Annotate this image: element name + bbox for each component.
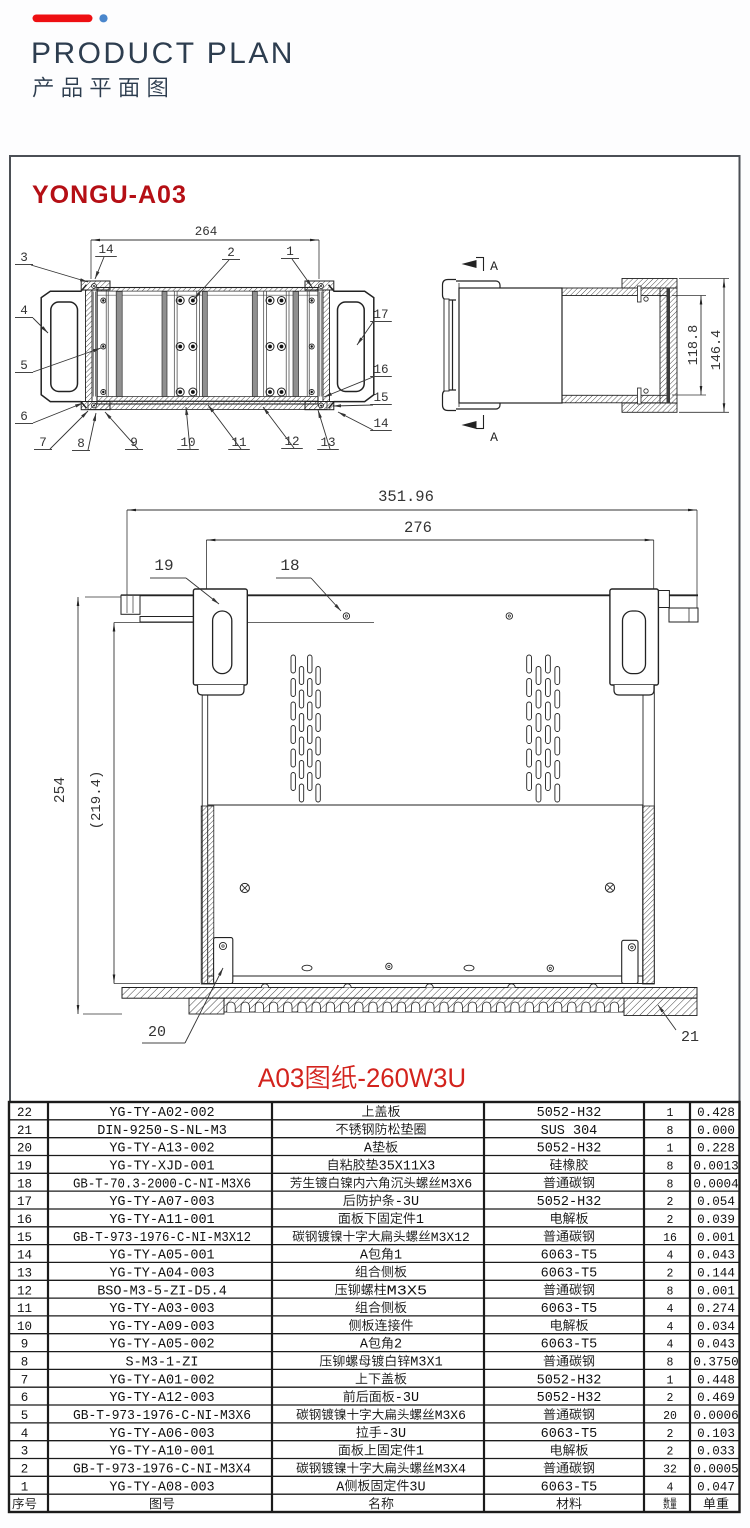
svg-text:8: 8 (667, 1125, 674, 1138)
svg-text:PRODUCT PLAN: PRODUCT PLAN (31, 37, 295, 70)
svg-text:0.033: 0.033 (697, 1445, 735, 1459)
svg-text:M3X5: M3X5 (387, 1284, 428, 1299)
svg-text:1: 1 (667, 1107, 674, 1120)
svg-text:M3X6: M3X6 (441, 1176, 472, 1191)
svg-text:2: 2 (667, 1214, 674, 1227)
svg-text:8: 8 (77, 437, 85, 451)
svg-text:1: 1 (667, 1374, 674, 1387)
svg-text:16: 16 (17, 1213, 32, 1227)
svg-text:2: 2 (394, 1338, 402, 1353)
svg-text:6063-T5: 6063-T5 (541, 1302, 598, 1317)
svg-text:A: A (360, 1338, 369, 1353)
svg-text:10: 10 (17, 1320, 32, 1334)
svg-text:6063-T5: 6063-T5 (541, 1427, 598, 1442)
svg-text:3: 3 (20, 251, 28, 265)
svg-text:19: 19 (154, 557, 173, 575)
svg-text:4: 4 (667, 1481, 674, 1494)
svg-text:0.001: 0.001 (697, 1284, 735, 1298)
svg-text:146.4: 146.4 (710, 330, 725, 371)
svg-text:A: A (360, 1249, 369, 1264)
svg-text:6: 6 (21, 1391, 29, 1405)
svg-text:0.0006: 0.0006 (693, 1409, 738, 1423)
svg-text:4: 4 (667, 1321, 674, 1334)
svg-text:3U: 3U (409, 1480, 425, 1495)
svg-text:YG-TY-A03-003: YG-TY-A03-003 (109, 1302, 214, 1317)
svg-text:18: 18 (17, 1177, 32, 1191)
svg-text:1: 1 (394, 1249, 402, 1264)
svg-text:16: 16 (373, 363, 388, 377)
svg-text:-3U: -3U (382, 1427, 406, 1442)
svg-text:1: 1 (286, 245, 294, 259)
svg-text:6063-T5: 6063-T5 (541, 1338, 598, 1353)
svg-text:GB-T-973-1976-C-NI-M3X12: GB-T-973-1976-C-NI-M3X12 (73, 1231, 251, 1246)
svg-text:14: 14 (373, 417, 388, 431)
svg-text:0.034: 0.034 (697, 1320, 735, 1334)
svg-text:2: 2 (667, 1446, 674, 1459)
svg-text:M3X1: M3X1 (410, 1356, 442, 1371)
svg-text:1: 1 (667, 1143, 674, 1156)
svg-text:0.428: 0.428 (697, 1106, 735, 1120)
svg-text:6: 6 (20, 410, 28, 424)
svg-text:M3X6: M3X6 (435, 1408, 466, 1423)
svg-text:0.043: 0.043 (697, 1338, 735, 1352)
svg-text:2: 2 (667, 1428, 674, 1441)
svg-text:6063-T5: 6063-T5 (541, 1266, 598, 1281)
svg-text:A03: A03 (258, 1063, 305, 1093)
svg-text:3: 3 (21, 1445, 29, 1459)
svg-text:8: 8 (667, 1357, 674, 1370)
svg-text:0.144: 0.144 (697, 1266, 735, 1280)
svg-text:5052-H32: 5052-H32 (537, 1391, 602, 1406)
svg-text:YG-TY-A11-001: YG-TY-A11-001 (109, 1213, 214, 1228)
svg-text:YG-TY-A12-003: YG-TY-A12-003 (109, 1391, 214, 1406)
svg-text:-3U: -3U (395, 1391, 419, 1406)
svg-text:2: 2 (667, 1392, 674, 1405)
svg-text:YG-TY-A05-001: YG-TY-A05-001 (109, 1249, 214, 1264)
svg-text:M3X4: M3X4 (435, 1462, 466, 1477)
svg-text:7: 7 (39, 436, 47, 450)
svg-text:A: A (490, 259, 498, 274)
svg-text:0.469: 0.469 (697, 1391, 735, 1405)
svg-text:YG-TY-A13-002: YG-TY-A13-002 (109, 1142, 214, 1157)
svg-text:YG-TY-A04-003: YG-TY-A04-003 (109, 1266, 214, 1281)
svg-text:YG-TY-A06-003: YG-TY-A06-003 (109, 1427, 214, 1442)
svg-text:21: 21 (17, 1124, 32, 1138)
svg-text:YG-TY-A09-003: YG-TY-A09-003 (109, 1320, 214, 1335)
svg-text:8: 8 (21, 1356, 29, 1370)
svg-text:0.043: 0.043 (697, 1249, 735, 1263)
svg-text:0.3750: 0.3750 (693, 1356, 738, 1370)
svg-text:YG-TY-A05-002: YG-TY-A05-002 (109, 1338, 214, 1353)
svg-text:254: 254 (53, 777, 69, 803)
svg-text:-3U: -3U (395, 1195, 419, 1210)
svg-text:2: 2 (667, 1196, 674, 1209)
svg-text:YG-TY-XJD-001: YG-TY-XJD-001 (109, 1159, 214, 1174)
svg-text:A: A (336, 1480, 345, 1495)
svg-text:0.228: 0.228 (697, 1142, 735, 1156)
svg-text:2: 2 (667, 1267, 674, 1280)
svg-text:0.0005: 0.0005 (693, 1463, 738, 1477)
svg-text:A: A (490, 430, 498, 445)
svg-text:20: 20 (148, 1024, 166, 1041)
svg-text:15: 15 (373, 391, 388, 405)
svg-text:1: 1 (416, 1213, 424, 1228)
svg-text:(219.4): (219.4) (89, 771, 105, 830)
svg-text:0.001: 0.001 (697, 1231, 735, 1245)
svg-text:20: 20 (663, 1410, 677, 1423)
svg-text:8: 8 (667, 1285, 674, 1298)
svg-text:6063-T5: 6063-T5 (541, 1480, 598, 1495)
svg-text:18: 18 (280, 557, 299, 575)
svg-text:YONGU-A03: YONGU-A03 (32, 181, 187, 209)
svg-text:276: 276 (404, 519, 432, 537)
svg-text:6063-T5: 6063-T5 (541, 1249, 598, 1264)
svg-text:10: 10 (180, 436, 195, 450)
svg-text:9: 9 (21, 1338, 29, 1352)
svg-text:0.274: 0.274 (697, 1302, 735, 1316)
svg-text:14: 14 (17, 1249, 32, 1263)
svg-text:32: 32 (663, 1464, 677, 1477)
svg-text:7: 7 (21, 1373, 29, 1387)
svg-text:0.054: 0.054 (697, 1195, 735, 1209)
svg-text:YG-TY-A08-003: YG-TY-A08-003 (109, 1480, 214, 1495)
svg-text:YG-TY-A07-003: YG-TY-A07-003 (109, 1195, 214, 1210)
svg-text:19: 19 (17, 1159, 32, 1173)
svg-text:17: 17 (17, 1195, 32, 1209)
svg-text:264: 264 (195, 225, 218, 239)
svg-text:GB-T-973-1976-C-NI-M3X6: GB-T-973-1976-C-NI-M3X6 (73, 1409, 251, 1424)
svg-text:GB-T-70.3-2000-C-NI-M3X6: GB-T-70.3-2000-C-NI-M3X6 (73, 1177, 251, 1192)
svg-text:5: 5 (20, 359, 28, 373)
svg-text:2: 2 (227, 246, 235, 260)
svg-text:0.039: 0.039 (697, 1213, 735, 1227)
svg-text:11: 11 (231, 436, 246, 450)
svg-text:0.103: 0.103 (697, 1427, 735, 1441)
svg-text:2: 2 (21, 1463, 29, 1477)
svg-text:4: 4 (667, 1339, 674, 1352)
svg-text:4: 4 (20, 304, 28, 318)
svg-text:12: 12 (284, 435, 299, 449)
svg-text:0.0004: 0.0004 (693, 1177, 738, 1191)
svg-text:351.96: 351.96 (378, 488, 434, 506)
svg-text:YG-TY-A01-002: YG-TY-A01-002 (109, 1373, 214, 1388)
svg-text:0.448: 0.448 (697, 1373, 735, 1387)
svg-text:5052-H32: 5052-H32 (537, 1195, 602, 1210)
svg-text:YG-TY-A02-002: YG-TY-A02-002 (109, 1106, 214, 1121)
svg-text:BSO-M3-5-ZI-D5.4: BSO-M3-5-ZI-D5.4 (97, 1284, 227, 1299)
svg-text:S-M3-1-ZI: S-M3-1-ZI (126, 1356, 199, 1371)
svg-text:GB-T-973-1976-C-NI-M3X4: GB-T-973-1976-C-NI-M3X4 (73, 1463, 251, 1478)
svg-text:13: 13 (17, 1266, 32, 1280)
svg-text:DIN-9250-S-NL-M3: DIN-9250-S-NL-M3 (97, 1124, 227, 1139)
svg-text:4: 4 (21, 1427, 29, 1441)
svg-text:5052-H32: 5052-H32 (537, 1373, 602, 1388)
svg-text:5: 5 (21, 1409, 29, 1423)
svg-text:20: 20 (17, 1142, 32, 1156)
svg-text:8: 8 (667, 1178, 674, 1191)
svg-text:0.0013: 0.0013 (693, 1159, 738, 1173)
svg-text:1: 1 (416, 1445, 424, 1460)
svg-text:5052-H32: 5052-H32 (537, 1106, 602, 1121)
svg-text:1: 1 (21, 1480, 29, 1494)
svg-text:12: 12 (17, 1284, 32, 1298)
svg-text:0.047: 0.047 (697, 1480, 735, 1494)
svg-text:M3X12: M3X12 (431, 1230, 470, 1245)
svg-text:21: 21 (681, 1029, 699, 1046)
svg-text:8: 8 (667, 1160, 674, 1173)
svg-text:22: 22 (17, 1106, 32, 1120)
svg-text:11: 11 (17, 1302, 32, 1316)
svg-text:0.000: 0.000 (697, 1124, 735, 1138)
svg-text:16: 16 (663, 1232, 677, 1245)
svg-text:17: 17 (373, 308, 388, 322)
svg-text:YG-TY-A10-001: YG-TY-A10-001 (109, 1445, 214, 1460)
svg-text:118.8: 118.8 (687, 325, 702, 366)
svg-text:14: 14 (98, 243, 113, 257)
svg-text:SUS 304: SUS 304 (541, 1124, 598, 1139)
svg-text:-260W3U: -260W3U (357, 1063, 466, 1093)
svg-text:5052-H32: 5052-H32 (537, 1142, 602, 1157)
svg-text:4: 4 (667, 1303, 674, 1316)
svg-text:A: A (364, 1142, 373, 1157)
svg-text:35X11X3: 35X11X3 (379, 1160, 436, 1175)
svg-text:4: 4 (667, 1250, 674, 1263)
svg-text:15: 15 (17, 1231, 32, 1245)
